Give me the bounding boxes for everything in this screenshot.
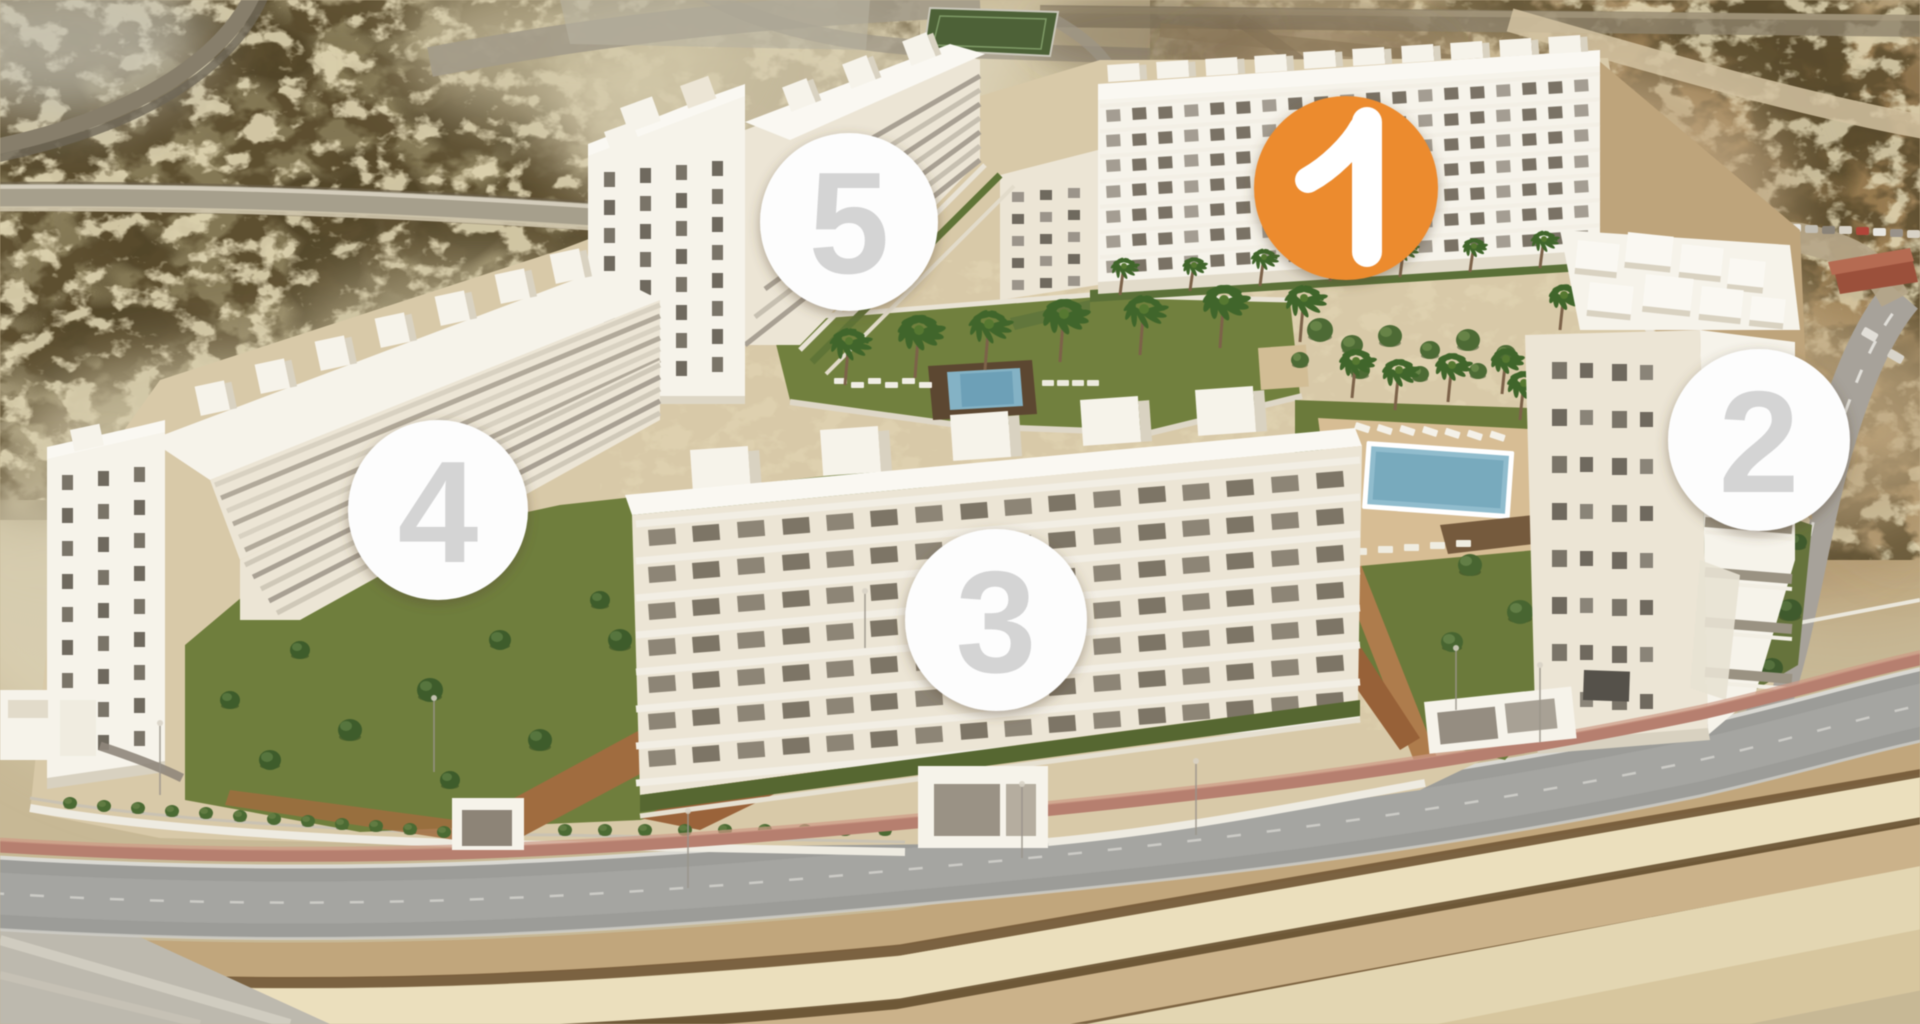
svg-text:4: 4 [398, 431, 479, 593]
svg-text:5: 5 [809, 142, 890, 304]
svg-text:3: 3 [956, 541, 1037, 703]
svg-text:2: 2 [1719, 361, 1800, 523]
